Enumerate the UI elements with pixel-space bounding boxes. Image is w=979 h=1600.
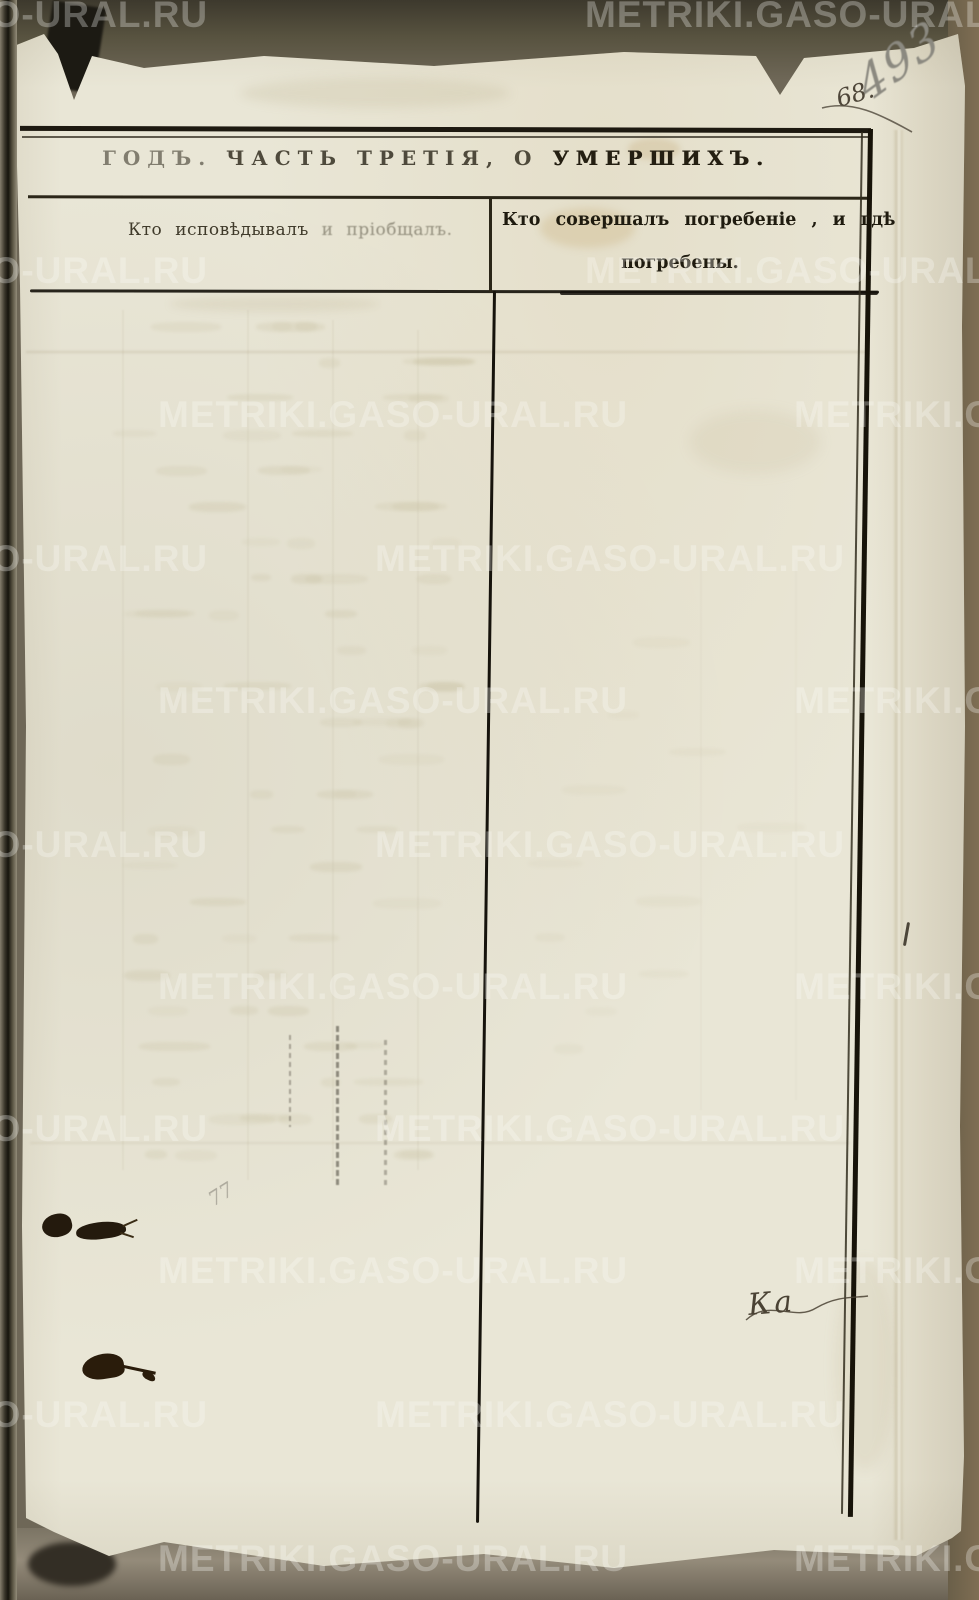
bleedthrough-blob bbox=[412, 646, 447, 655]
pencil-streak bbox=[384, 1040, 387, 1190]
bleedthrough-blob bbox=[403, 358, 474, 365]
bleedthrough-blob bbox=[317, 790, 372, 799]
bleedthrough-blob bbox=[251, 574, 271, 581]
pencil-streak bbox=[336, 1026, 339, 1188]
bleedthrough-blob bbox=[122, 862, 177, 869]
bleedthrough-blob bbox=[669, 748, 727, 756]
ink-flourish bbox=[818, 98, 918, 140]
pencil-streak bbox=[289, 1035, 291, 1127]
bleedthrough-blob bbox=[639, 970, 688, 978]
bleedthrough-blob bbox=[562, 785, 627, 795]
bleedthrough-blob bbox=[636, 896, 701, 907]
paper-stain bbox=[240, 78, 510, 108]
bleedthrough-blob bbox=[224, 682, 291, 690]
bleedthrough-blob bbox=[253, 970, 286, 980]
bleedthrough-blob bbox=[250, 790, 273, 799]
bleedthrough-blob bbox=[554, 1044, 583, 1054]
bleedthrough-blob bbox=[222, 934, 256, 943]
bleedthrough-blob bbox=[256, 322, 325, 332]
clerk-mark-flourish bbox=[742, 1286, 870, 1330]
bleedthrough-line bbox=[417, 330, 419, 1170]
paper-crease-horizontal bbox=[30, 1142, 850, 1144]
bleedthrough-blob bbox=[151, 322, 221, 332]
paper-stain bbox=[170, 296, 380, 312]
bleedthrough-blob bbox=[152, 1078, 180, 1086]
bleedthrough-blob bbox=[356, 826, 398, 833]
bleedthrough-blob bbox=[287, 538, 316, 549]
bleedthrough-blob bbox=[535, 933, 565, 942]
bleedthrough-blob bbox=[289, 934, 339, 942]
bleedthrough-line bbox=[700, 560, 702, 1110]
bleedthrough-blob bbox=[148, 1006, 189, 1016]
bleedthrough-blob bbox=[427, 682, 463, 692]
column-divider-header bbox=[489, 198, 492, 292]
page-title-deceased: УМЕРШИХЪ. bbox=[552, 146, 770, 170]
bleedthrough-blob bbox=[124, 970, 169, 981]
book-binding-edge bbox=[0, 0, 17, 1600]
bleedthrough-blob bbox=[305, 574, 368, 584]
right-column-header-line2: погребены. bbox=[502, 253, 858, 273]
bleedthrough-blob bbox=[113, 430, 155, 437]
bleedthrough-blob bbox=[223, 430, 282, 441]
bleedthrough-blob bbox=[227, 394, 293, 401]
bleedthrough-blob bbox=[633, 637, 690, 648]
left-column-header-faded: и пріобщалъ. bbox=[309, 220, 453, 240]
right-column-header-line1: Кто совершалъ погребеніе , и гдѣ bbox=[502, 210, 858, 230]
bleedthrough-blob bbox=[431, 538, 460, 548]
bleedthrough-blob bbox=[292, 430, 354, 437]
bleedthrough-blob bbox=[386, 718, 420, 729]
bleedthrough-blob bbox=[319, 358, 340, 368]
bleedthrough-blob bbox=[354, 1078, 423, 1086]
bleedthrough-blob bbox=[608, 711, 638, 719]
bleedthrough-blob bbox=[345, 1042, 386, 1049]
bleedthrough-blob bbox=[268, 1006, 308, 1016]
bleedthrough-blob bbox=[325, 610, 357, 618]
bleedthrough-blob bbox=[392, 502, 439, 511]
bleedthrough-blob bbox=[337, 646, 366, 655]
paper-crease-horizontal bbox=[26, 351, 866, 353]
bleedthrough-blob bbox=[153, 754, 189, 765]
bleedthrough-blob bbox=[528, 859, 583, 868]
bleedthrough-blob bbox=[258, 466, 310, 475]
bleedthrough-blob bbox=[417, 574, 451, 584]
scanned-metrical-book-page: ГОДЪ.ЧАСТЬ ТРЕТІЯ, ОУМЕРШИХЪ. Кто исповѣ… bbox=[0, 0, 979, 1600]
bleedthrough-blob bbox=[133, 934, 158, 944]
paper-crease-vertical bbox=[893, 130, 904, 1540]
bleedthrough-blob bbox=[359, 1114, 392, 1124]
bleedthrough-blob bbox=[242, 538, 279, 546]
bleedthrough-blob bbox=[394, 1150, 434, 1160]
bleedthrough-blob bbox=[139, 1042, 210, 1051]
bleedthrough-blob bbox=[124, 610, 189, 618]
bleedthrough-blob bbox=[310, 862, 362, 872]
bleedthrough-blob bbox=[209, 610, 239, 621]
bleedthrough-blob bbox=[189, 502, 246, 512]
bleedthrough-blob bbox=[156, 466, 207, 476]
bleedthrough-line bbox=[122, 310, 124, 1170]
bleedthrough-blob bbox=[145, 1150, 167, 1159]
bleedthrough-blob bbox=[175, 1150, 217, 1161]
bleedthrough-blob bbox=[156, 682, 201, 692]
bleedthrough-blob bbox=[190, 898, 246, 906]
bleedthrough-blob bbox=[279, 1114, 312, 1125]
header-row-underline-heavy bbox=[560, 291, 878, 295]
page-title-part: ЧАСТЬ ТРЕТІЯ, О bbox=[226, 146, 538, 170]
page-title-year: ГОДЪ. bbox=[102, 146, 212, 170]
page-title: ГОДЪ.ЧАСТЬ ТРЕТІЯ, ОУМЕРШИХЪ. bbox=[30, 146, 842, 170]
bleedthrough-blob bbox=[409, 394, 449, 403]
bleedthrough-blob bbox=[585, 1007, 617, 1016]
bleedthrough-blob bbox=[379, 754, 444, 765]
paper-stain bbox=[690, 410, 820, 474]
bleedthrough-blob bbox=[271, 826, 305, 833]
bleedthrough-blob bbox=[230, 1006, 258, 1015]
bleedthrough-blob bbox=[373, 898, 441, 909]
left-column-header: Кто исповѣдывалъ и пріобщалъ. bbox=[128, 220, 428, 240]
bleedthrough-blob bbox=[148, 826, 196, 837]
table-top-border-echo bbox=[22, 136, 869, 138]
left-column-header-main: Кто исповѣдывалъ bbox=[128, 220, 309, 240]
bleedthrough-blob bbox=[404, 430, 426, 441]
bleedthrough-blob bbox=[737, 822, 805, 833]
